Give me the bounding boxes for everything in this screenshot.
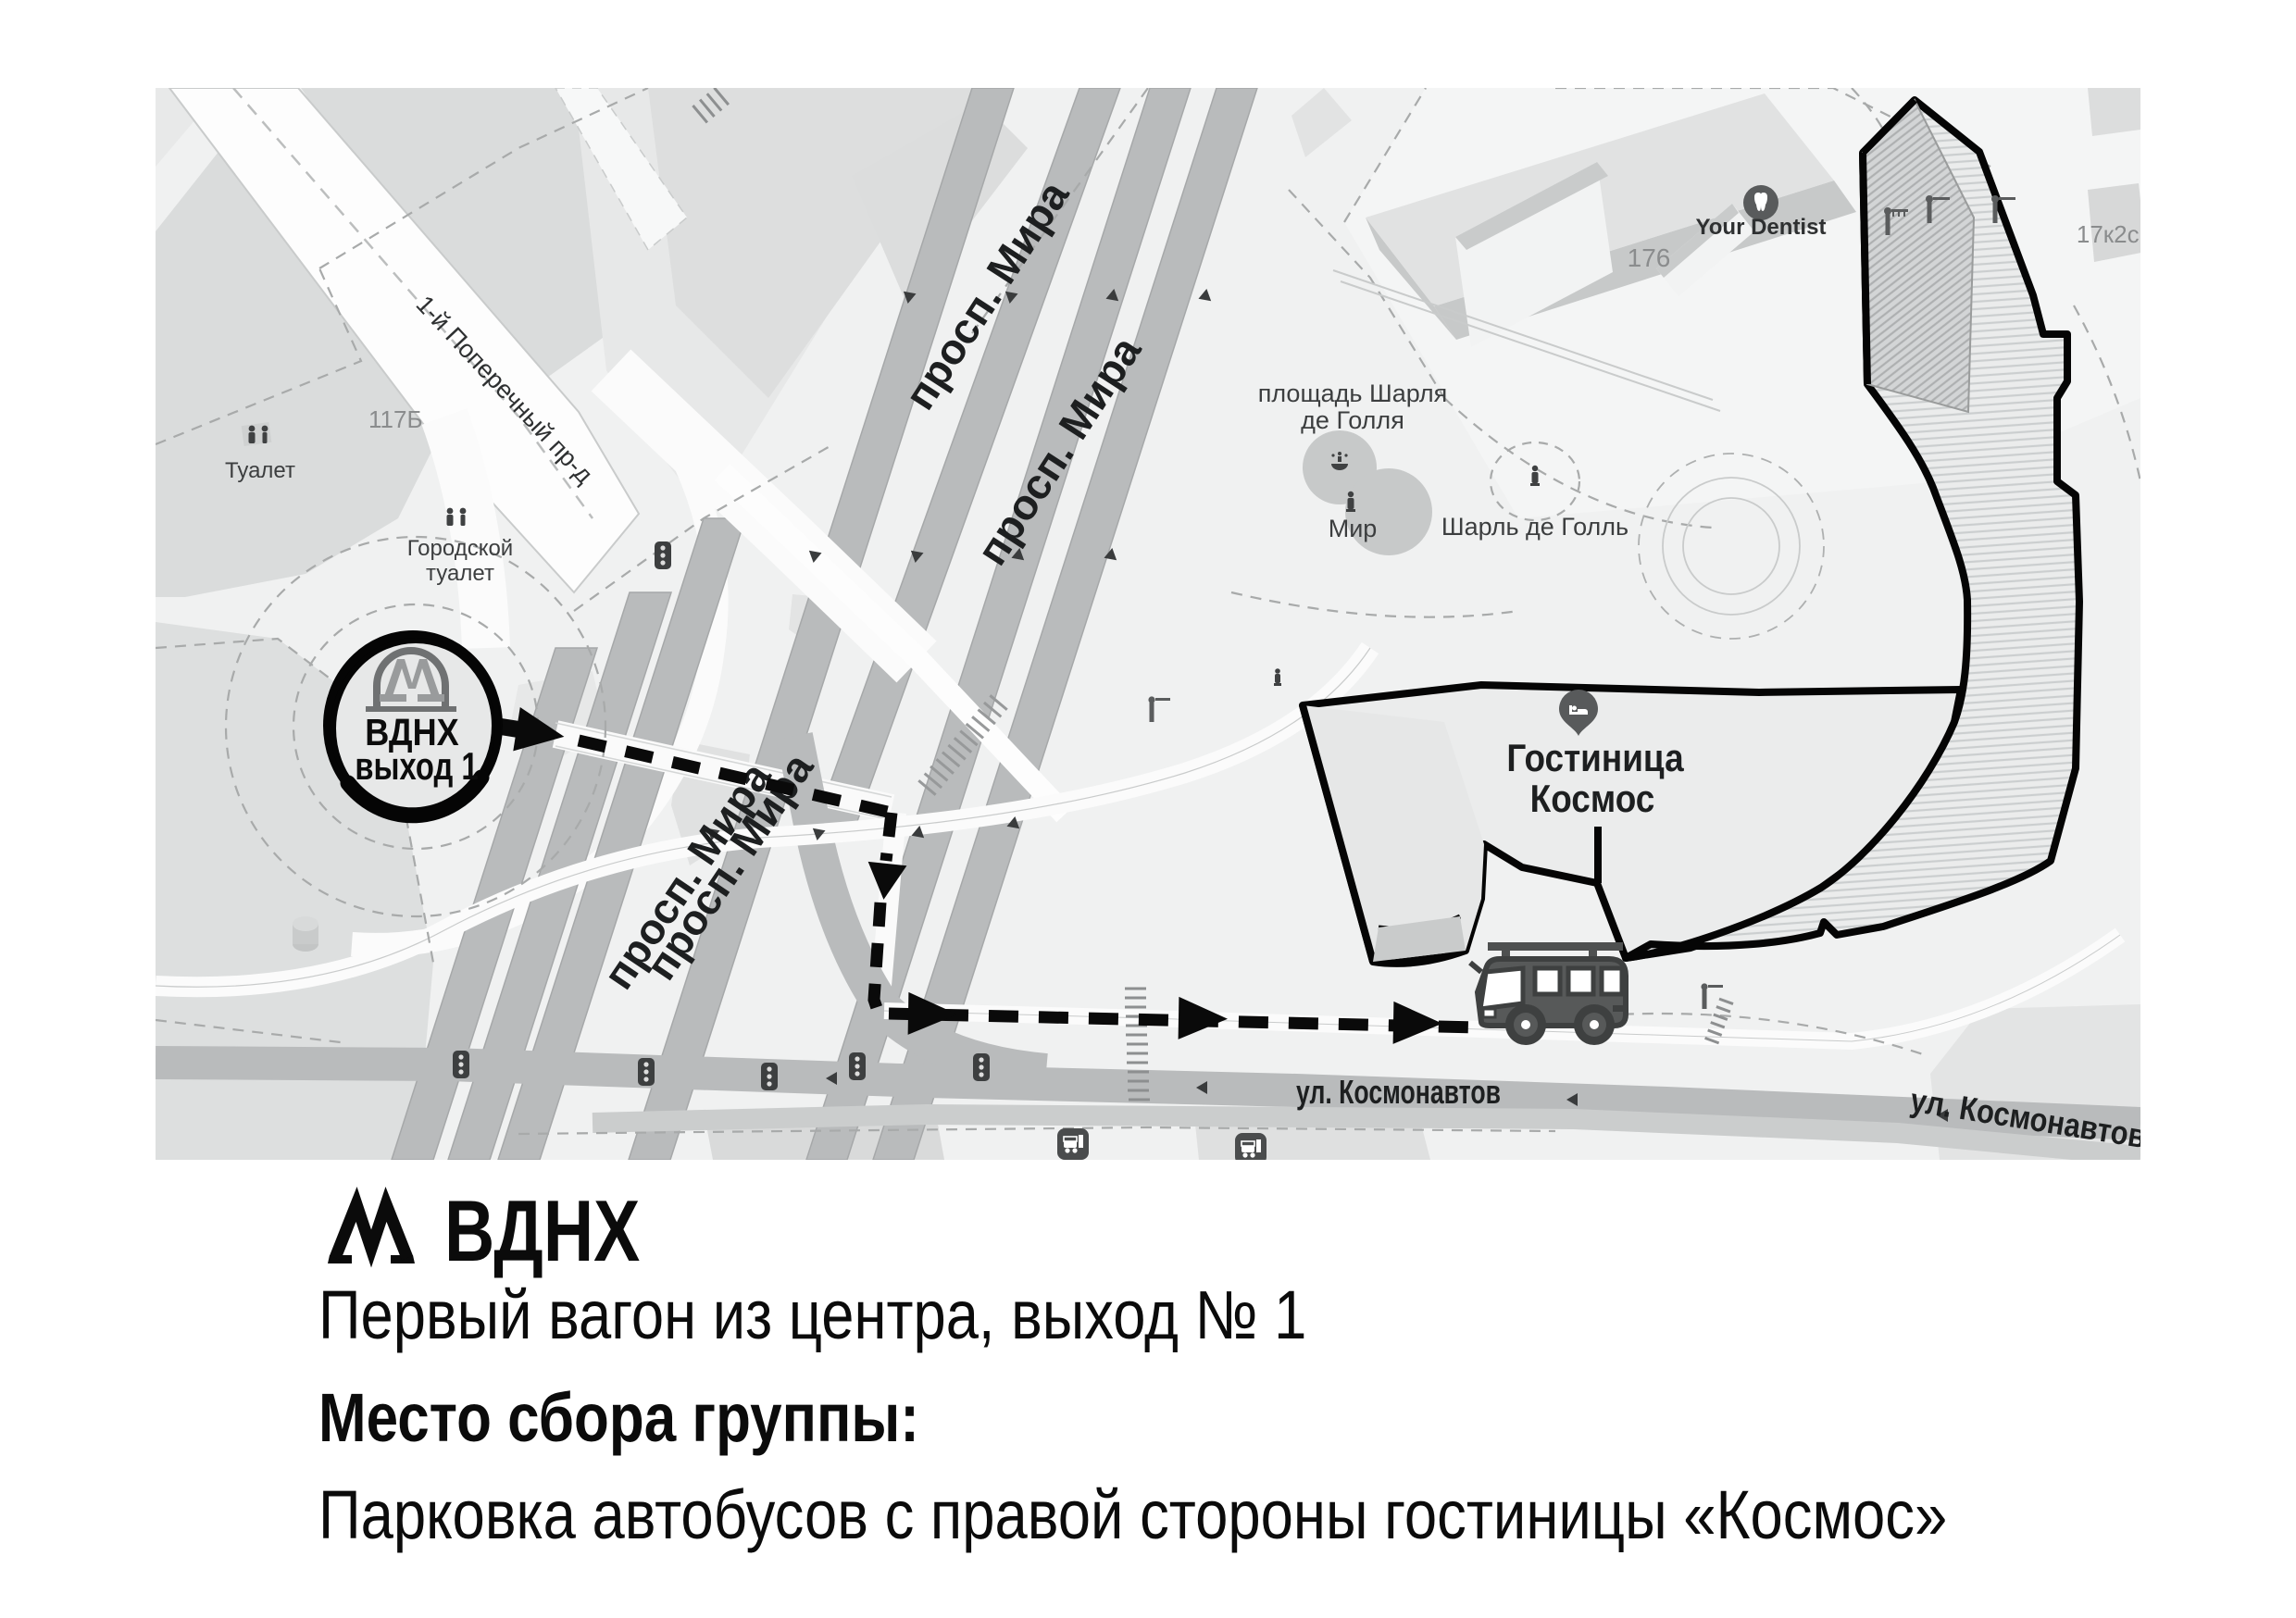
svg-text:ул. Космонавтов: ул. Космонавтов [1296, 1073, 1501, 1111]
svg-text:ВДНХ: ВДНХ [444, 1183, 641, 1280]
svg-text:площадь Шарля: площадь Шарля [1258, 380, 1447, 407]
svg-text:Парковка автобусов с правой ст: Парковка автобусов с правой стороны гост… [318, 1476, 1947, 1553]
svg-text:Первый вагон из центра, выход: Первый вагон из центра, выход № 1 [318, 1276, 1306, 1353]
svg-text:Шарль де Голль: Шарль де Голль [1441, 513, 1628, 541]
svg-text:176: 176 [1628, 243, 1671, 272]
svg-text:Your Dentist: Your Dentist [1696, 215, 1827, 240]
svg-text:Мир: Мир [1329, 515, 1378, 542]
svg-text:Космос: Космос [1530, 778, 1655, 821]
svg-text:Место сбора группы:: Место сбора группы: [318, 1380, 919, 1456]
svg-text:де Голля: де Голля [1301, 406, 1404, 434]
svg-text:Гостиница: Гостиница [1506, 737, 1684, 780]
svg-text:туалет: туалет [426, 561, 494, 586]
svg-text:Туалет: Туалет [225, 458, 295, 483]
svg-text:выход 1: выход 1 [355, 744, 478, 788]
svg-text:117Б: 117Б [368, 405, 423, 433]
svg-text:Городской: Городской [407, 536, 513, 561]
